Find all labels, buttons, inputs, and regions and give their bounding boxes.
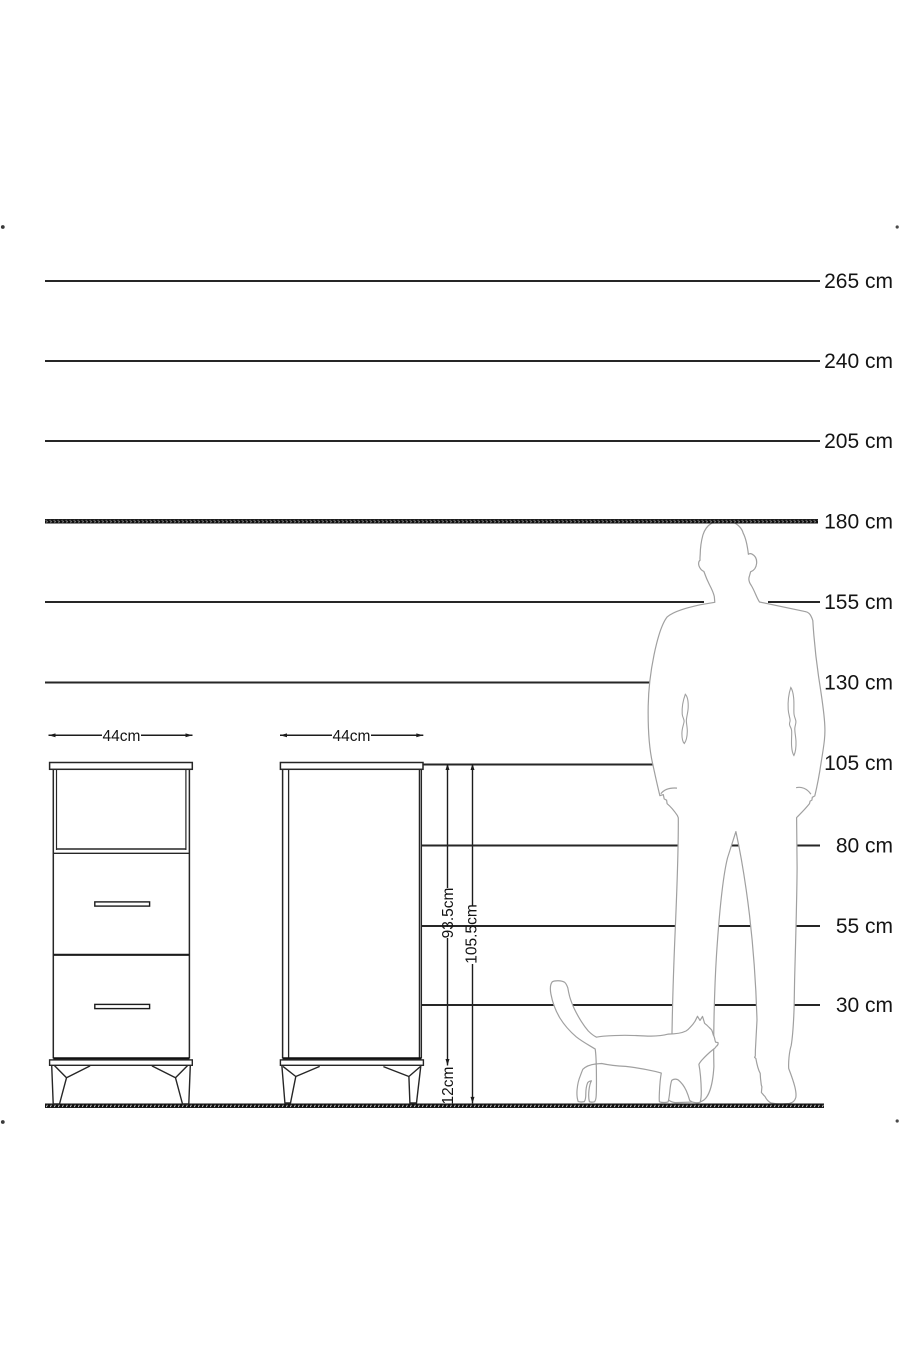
svg-text:30 cm: 30 cm	[836, 994, 893, 1017]
svg-text:265 cm: 265 cm	[824, 270, 893, 293]
svg-text:55 cm: 55 cm	[836, 915, 893, 938]
svg-text:130 cm: 130 cm	[824, 672, 893, 695]
svg-text:180 cm: 180 cm	[824, 511, 893, 534]
svg-text:93.5cm: 93.5cm	[440, 888, 457, 939]
svg-text:240 cm: 240 cm	[824, 350, 893, 373]
svg-text:155 cm: 155 cm	[824, 591, 893, 614]
svg-text:12cm: 12cm	[440, 1067, 457, 1105]
svg-text:105 cm: 105 cm	[824, 752, 893, 775]
svg-text:105.5cm: 105.5cm	[464, 904, 481, 963]
svg-text:44cm: 44cm	[333, 728, 371, 745]
svg-text:205 cm: 205 cm	[824, 430, 893, 453]
svg-text:44cm: 44cm	[103, 728, 141, 745]
svg-text:80 cm: 80 cm	[836, 835, 893, 858]
